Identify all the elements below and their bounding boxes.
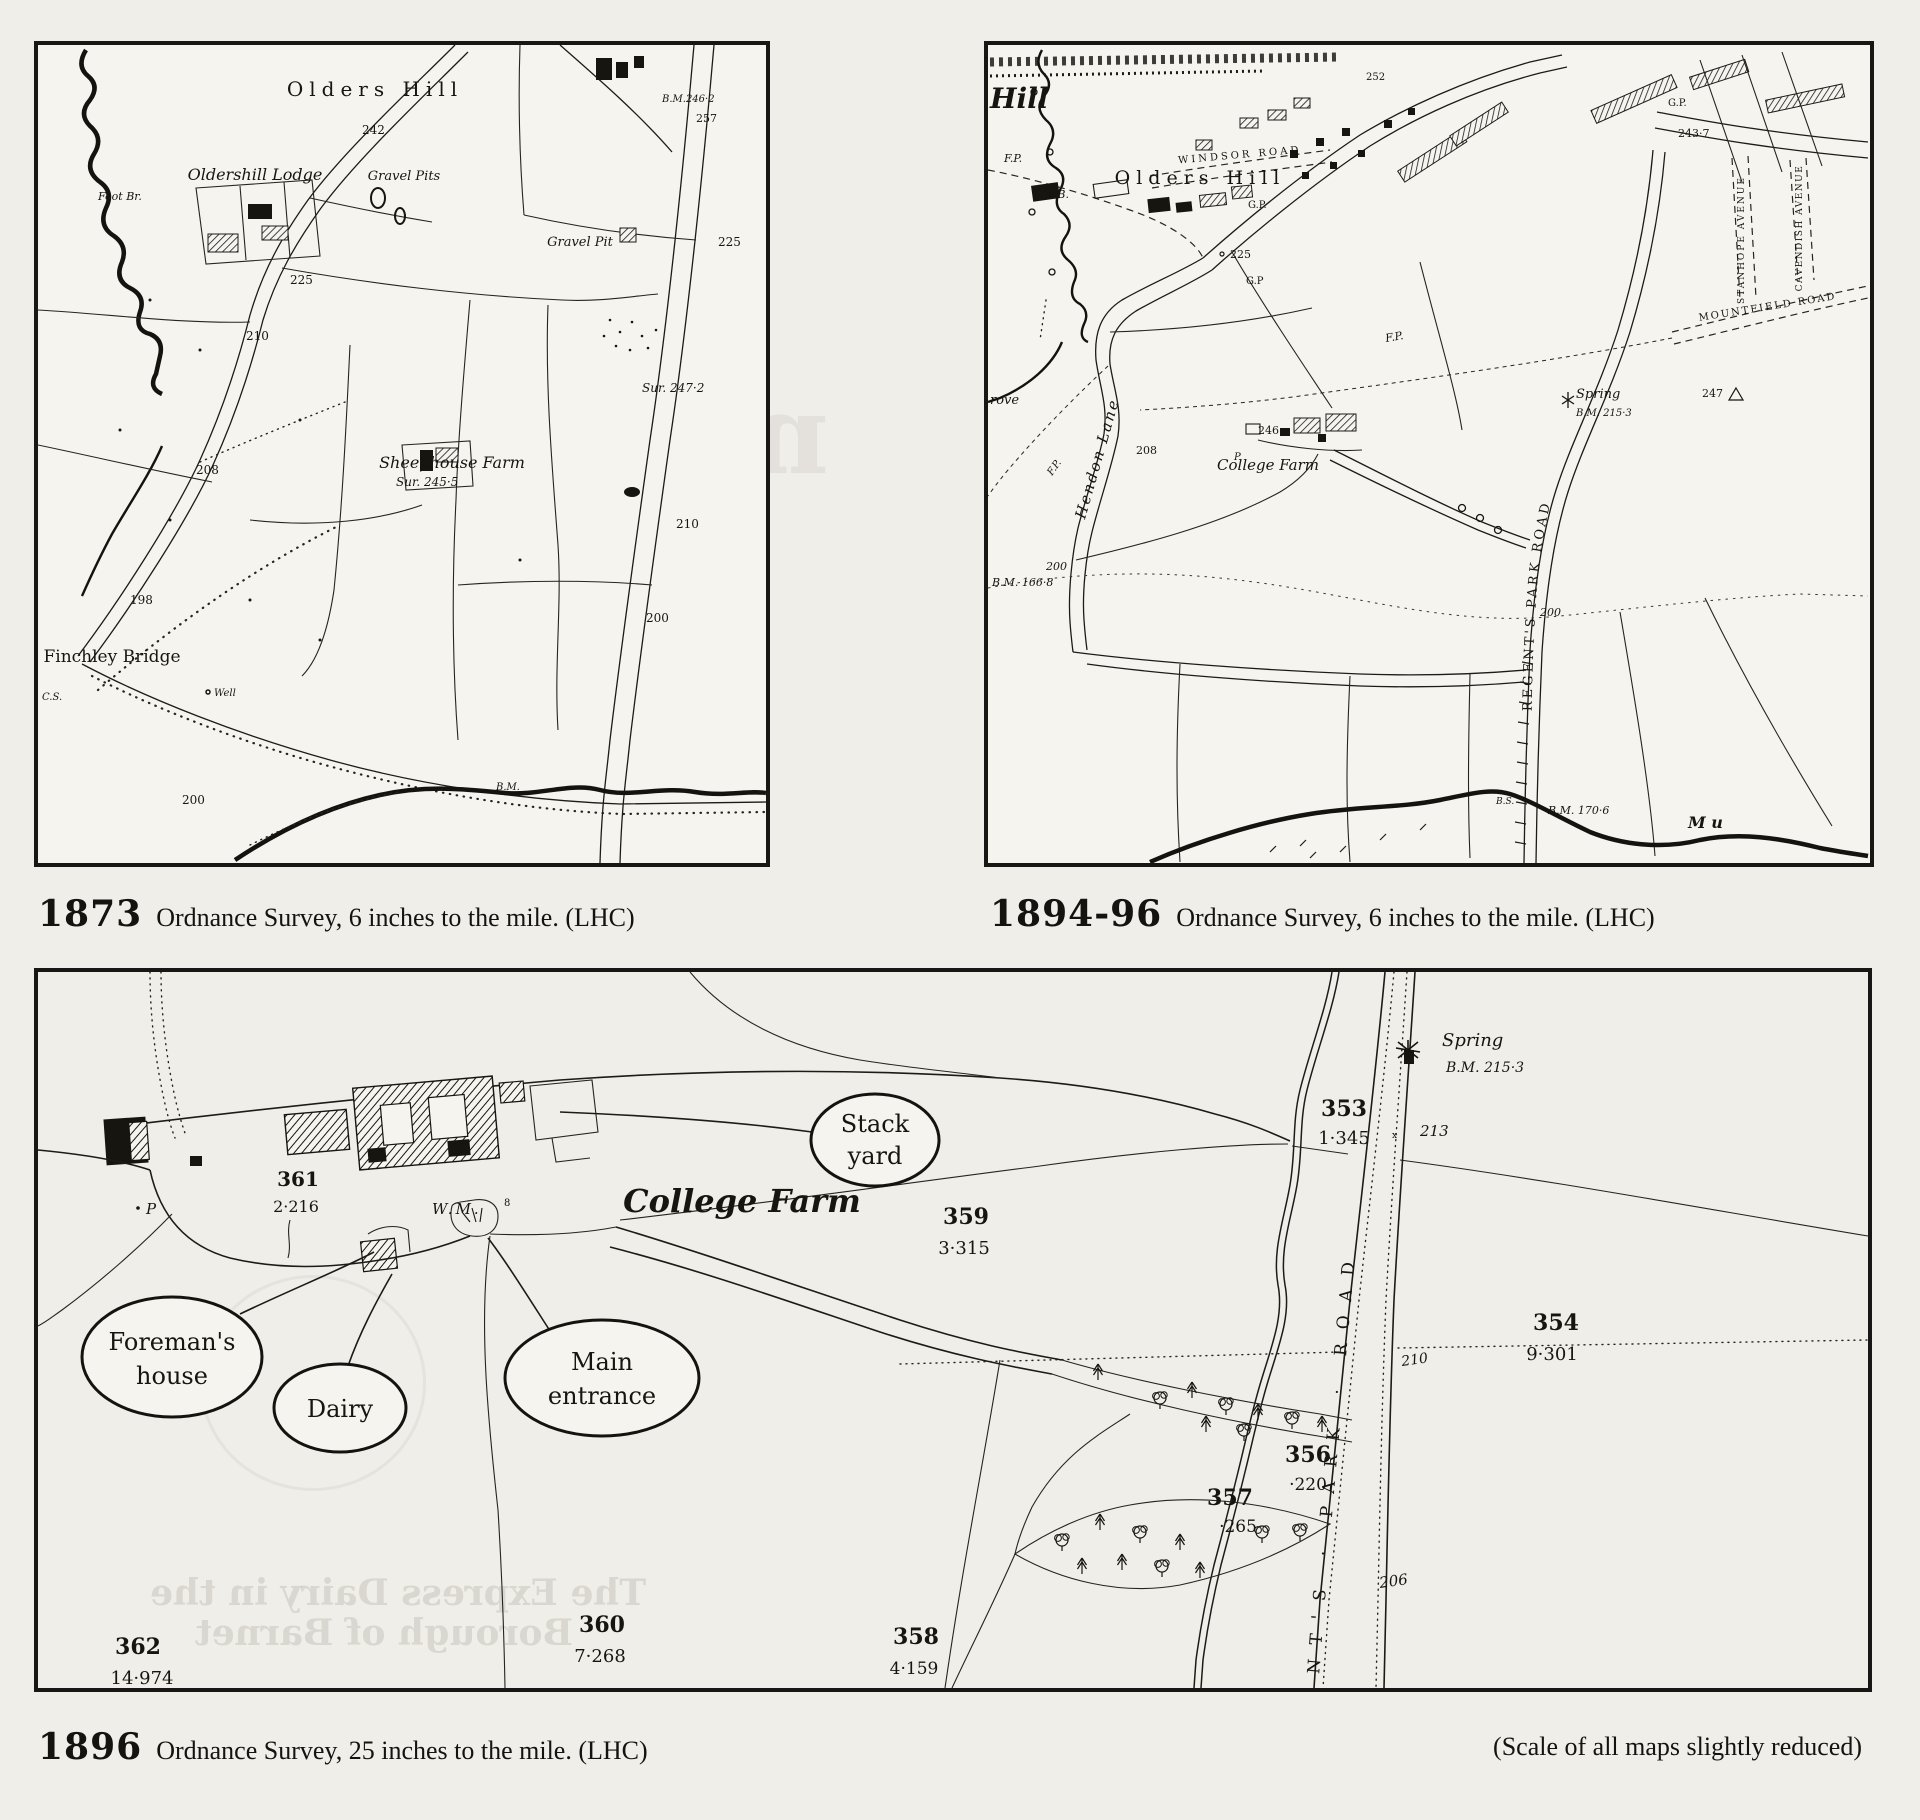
parcel-360-area: 7·268 [574, 1646, 626, 1667]
scale-note: (Scale of all maps slightly reduced) [1493, 1732, 1862, 1762]
label-198: 198 [130, 593, 153, 607]
label-grove: rove [990, 393, 1019, 408]
parcel-356-number: 356 [1285, 1442, 1331, 1468]
label-210: 210 [1399, 1350, 1429, 1370]
foremans-house-oval [82, 1297, 262, 1417]
parcel-357-area: ·265 [1219, 1517, 1257, 1537]
label-bm-246: B.M.246·2 [661, 94, 715, 105]
parcel-361-area: 2·216 [273, 1197, 319, 1216]
contour-200 [988, 574, 1868, 618]
parcel-360-number: 360 [579, 1612, 625, 1638]
field-boundary-south [945, 1360, 1000, 1688]
field-boundaries [38, 45, 696, 740]
label-cs: C.S. [42, 692, 62, 703]
label-olders-hill: Olders Hill [287, 77, 463, 101]
label-208: 208 [1136, 444, 1157, 457]
label-sur-247: Sur. 247·2 [642, 381, 704, 395]
parcel-362-area: 14·974 [111, 1668, 174, 1688]
regents-park-road: REGENT'S PARK ROAD [1515, 150, 1665, 863]
label-243-7: 243·7 [1678, 127, 1710, 140]
label-213: 213 [1419, 1122, 1449, 1140]
callout-house: house [136, 1362, 208, 1390]
label-247: 247 [1702, 387, 1723, 400]
spring-symbol [1396, 1040, 1420, 1064]
caption-1896-text: Ordnance Survey, 25 inches to the mile. … [156, 1736, 647, 1765]
label-200: 200 [182, 793, 205, 807]
label-bm-215: B.M. 215·3 [1575, 408, 1632, 419]
label-stanhope-avenue: STANHOPE AVENUE [1737, 176, 1747, 304]
callout-foremans: Foreman's [109, 1328, 236, 1356]
label-bm-215: B.M. 215·3 [1445, 1060, 1524, 1076]
map-1894-96-drawing: REGENT'S PARK ROAD [988, 45, 1870, 863]
parcel-358-number: 358 [893, 1624, 939, 1650]
label-246: 246 [1258, 424, 1279, 437]
callout-stack: Stack [841, 1110, 910, 1138]
label-fb: F.B. [1047, 188, 1069, 201]
map-1873: Olders Hill B.M.246·2 257 242 Oldershill… [34, 41, 770, 867]
stream-bottom [235, 787, 766, 860]
label-213-mark: x [1392, 1131, 1397, 1141]
stack-yard-oval [811, 1094, 939, 1186]
map-1896: NT'S · PARK · ROAD [34, 968, 1872, 1692]
label-gravel-pits: Gravel Pits [368, 169, 441, 184]
college-farm-buildings [1246, 414, 1530, 548]
triangulation-symbol [1729, 388, 1743, 400]
parcel-361-brace [288, 1220, 290, 1258]
label-hendon-lane: Hendon Lane [1071, 396, 1123, 521]
terrace-buildings [1196, 52, 1845, 182]
label-225-b: 225 [718, 235, 741, 249]
label-208: 208 [196, 463, 219, 477]
map-1894-96: REGENT'S PARK ROAD [984, 41, 1874, 867]
label-gp-2: G.P [1246, 276, 1264, 287]
main-entrance-oval [505, 1320, 699, 1436]
label-wm: W.M. [432, 1200, 482, 1218]
label-gp-3: G.P. [1668, 98, 1687, 109]
label-finchley-bridge: Finchley Bridge [43, 647, 180, 667]
label-mountfield-road: MOUNTFIELD ROAD [1698, 291, 1837, 324]
p-dot [136, 1206, 140, 1210]
label-252: 252 [1366, 72, 1385, 83]
caption-1894-96: 1894-96Ordnance Survey, 6 inches to the … [990, 893, 1655, 935]
parcel-358-area: 4·159 [890, 1659, 939, 1679]
map-1873-drawing: Olders Hill B.M.246·2 257 242 Oldershill… [38, 45, 766, 863]
callout-yard: yard [847, 1142, 903, 1170]
caption-1896-year: 1896 [38, 1726, 142, 1768]
spring-symbol [1562, 392, 1574, 408]
caption-1894-96-year: 1894-96 [990, 893, 1162, 935]
parcel-359-number: 359 [943, 1204, 989, 1230]
label-sur-245: Sur. 245·5 [396, 475, 458, 489]
caption-1894-96-text: Ordnance Survey, 6 inches to the mile. (… [1176, 903, 1654, 932]
stream-left [81, 50, 162, 596]
label-wm-8: 8 [504, 1198, 510, 1209]
label-210-b: 210 [676, 517, 699, 531]
dotted-lane-northwest [150, 972, 186, 1138]
label-cavendish-avenue: CAVENDISH AVENUE [1795, 165, 1805, 292]
label-bm-166: B.M. 166·8 [991, 576, 1053, 589]
label-hill: Hill [989, 82, 1048, 115]
label-college-farm: College Farm [623, 1182, 861, 1220]
parcel-354-number: 354 [1533, 1310, 1579, 1336]
caption-1873: 1873Ordnance Survey, 6 inches to the mil… [38, 893, 635, 935]
caption-1896: 1896Ordnance Survey, 25 inches to the mi… [38, 1726, 648, 1768]
label-oldershill-lodge: Oldershill Lodge [188, 165, 323, 184]
parcel-362-number: 362 [115, 1634, 161, 1660]
label-mutton-brook: M u [1687, 813, 1723, 832]
label-college-farm: College Farm [1217, 456, 1319, 474]
label-fp-3: F.P. [1383, 329, 1404, 345]
callouts: Stack yard Foreman's house Dairy Main en… [82, 1094, 939, 1452]
map-1896-drawing: NT'S · PARK · ROAD [38, 972, 1868, 1688]
label-spring: Spring [1576, 387, 1620, 402]
callout-dairy: Dairy [307, 1395, 374, 1423]
road-right [560, 45, 714, 863]
parcel-361-number: 361 [277, 1167, 319, 1191]
label-206: 206 [1377, 1570, 1409, 1592]
grove-357 [1015, 1500, 1330, 1589]
label-fp-2: F.P. [1045, 458, 1064, 479]
parcel-359-area: 3·315 [938, 1238, 990, 1259]
label-257: 257 [696, 112, 717, 125]
tree-lane [952, 1360, 1352, 1688]
label-200-b: 200 [1539, 606, 1561, 619]
label-242: 242 [362, 123, 385, 137]
label-p: P [145, 1200, 157, 1218]
caption-1873-text: Ordnance Survey, 6 inches to the mile. (… [156, 903, 634, 932]
field-boundaries [988, 252, 1832, 862]
label-gp-1: G.P. [1248, 200, 1267, 211]
callout-main: Main [571, 1348, 633, 1376]
parcel-356-area: ·220 [1289, 1475, 1327, 1495]
label-bm-low: B.M. [495, 782, 520, 793]
label-gravel-pit: Gravel Pit [547, 235, 614, 250]
label-well: Well [214, 688, 236, 699]
road-main [78, 45, 468, 662]
foremans-house-building [361, 1238, 398, 1271]
label-210: 210 [246, 329, 269, 343]
label-bs: B.S. [1495, 797, 1514, 807]
oldershill-lodge-buildings [38, 180, 320, 264]
gravel-pits [371, 188, 636, 242]
label-225: 225 [290, 273, 313, 287]
college-farm-buildings [103, 1076, 598, 1272]
book-page: Milk for the millions Grafton [0, 0, 1920, 1820]
parcel-354-area: 9·301 [1526, 1344, 1578, 1365]
parcel-353-number: 353 [1321, 1096, 1367, 1122]
label-olders-hill: Olders Hill [1115, 167, 1286, 189]
label-225: 225 [1230, 248, 1251, 261]
label-200-a: 200 [1045, 560, 1067, 573]
label-spring: Spring [1442, 1030, 1503, 1051]
label-sheephouse-farm: Sheephouse Farm [379, 453, 525, 472]
label-foot-br: Foot Br. [97, 190, 142, 203]
label-200-b: 200 [646, 611, 669, 625]
label-fp-1: F.P. [1003, 152, 1022, 165]
callout-entrance: entrance [548, 1382, 656, 1410]
caption-1873-year: 1873 [38, 893, 142, 935]
parcel-353-area: 1·345 [1318, 1128, 1370, 1149]
road-east-west [1073, 652, 1526, 687]
road-to-finchley [1203, 55, 1567, 270]
parcel-357-number: 357 [1207, 1485, 1253, 1511]
bm-dot [1220, 252, 1224, 256]
label-bm-170: B.M. 170·6 [1547, 804, 1609, 817]
